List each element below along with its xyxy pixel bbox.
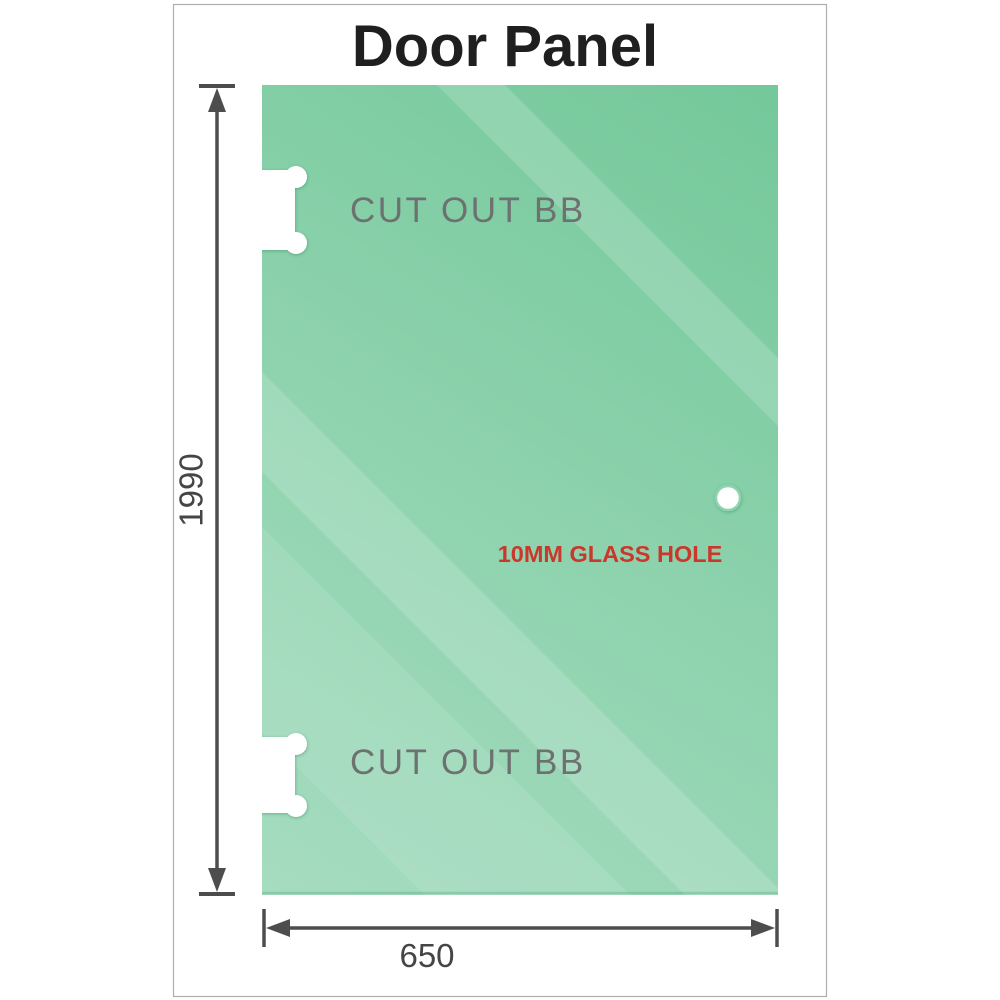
arrow-right-icon bbox=[751, 919, 775, 937]
cutout-top-label: CUT OUT BB bbox=[350, 191, 586, 230]
cutout-bottom-upper-lobe bbox=[285, 733, 307, 755]
cutout-top-lower-lobe bbox=[285, 232, 307, 254]
cutout-bottom-lower-lobe bbox=[285, 795, 307, 817]
glass-hole-label: 10MM GLASS HOLE bbox=[498, 541, 723, 567]
width-dimension: 650 bbox=[264, 909, 777, 974]
arrow-down-icon bbox=[208, 868, 226, 892]
width-dimension-label: 650 bbox=[399, 937, 454, 974]
cutout-bottom-label: CUT OUT BB bbox=[350, 743, 586, 782]
height-dimension: 1990 bbox=[173, 86, 236, 894]
door-panel-diagram: 1990 650 Door Panel CUT OUT BB CUT OUT B… bbox=[0, 0, 1000, 1000]
arrow-up-icon bbox=[208, 88, 226, 112]
glass-panel bbox=[256, 0, 778, 1000]
arrow-left-icon bbox=[266, 919, 290, 937]
glass-hole bbox=[716, 486, 740, 510]
cutout-top-upper-lobe bbox=[285, 166, 307, 188]
page-title: Door Panel bbox=[352, 14, 658, 79]
height-dimension-label: 1990 bbox=[173, 453, 210, 526]
diagram-svg: 1990 650 Door Panel CUT OUT BB CUT OUT B… bbox=[0, 0, 1000, 1000]
